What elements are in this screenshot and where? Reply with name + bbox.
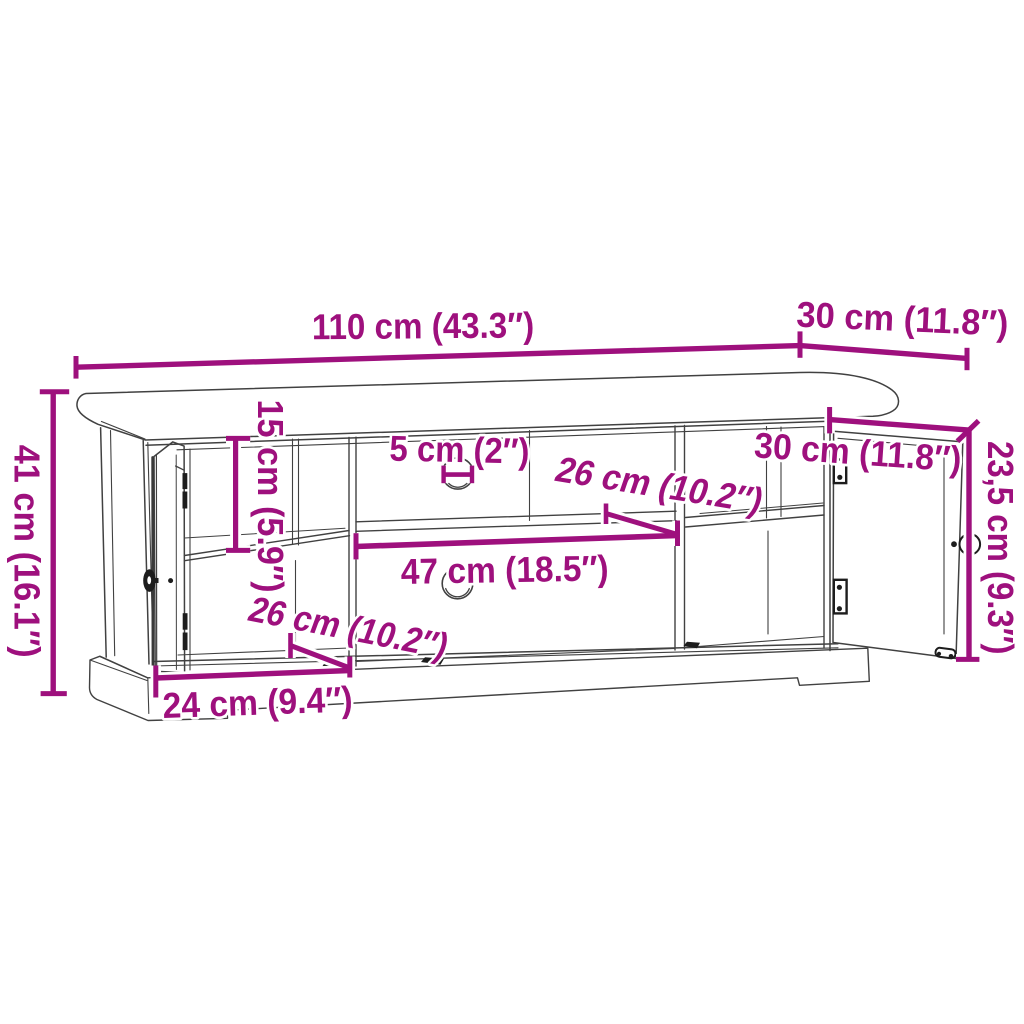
- svg-text:23,5 cm (9.3″): 23,5 cm (9.3″): [979, 441, 1019, 655]
- svg-text:41 cm (16.1″): 41 cm (16.1″): [7, 445, 47, 658]
- svg-text:24 cm (9.4″): 24 cm (9.4″): [162, 679, 353, 726]
- svg-text:15 cm (5.9″): 15 cm (5.9″): [250, 400, 290, 593]
- svg-text:110 cm (43.3″): 110 cm (43.3″): [312, 306, 535, 347]
- svg-text:5 cm (2″): 5 cm (2″): [389, 429, 530, 472]
- svg-text:47 cm (18.5″): 47 cm (18.5″): [400, 549, 609, 592]
